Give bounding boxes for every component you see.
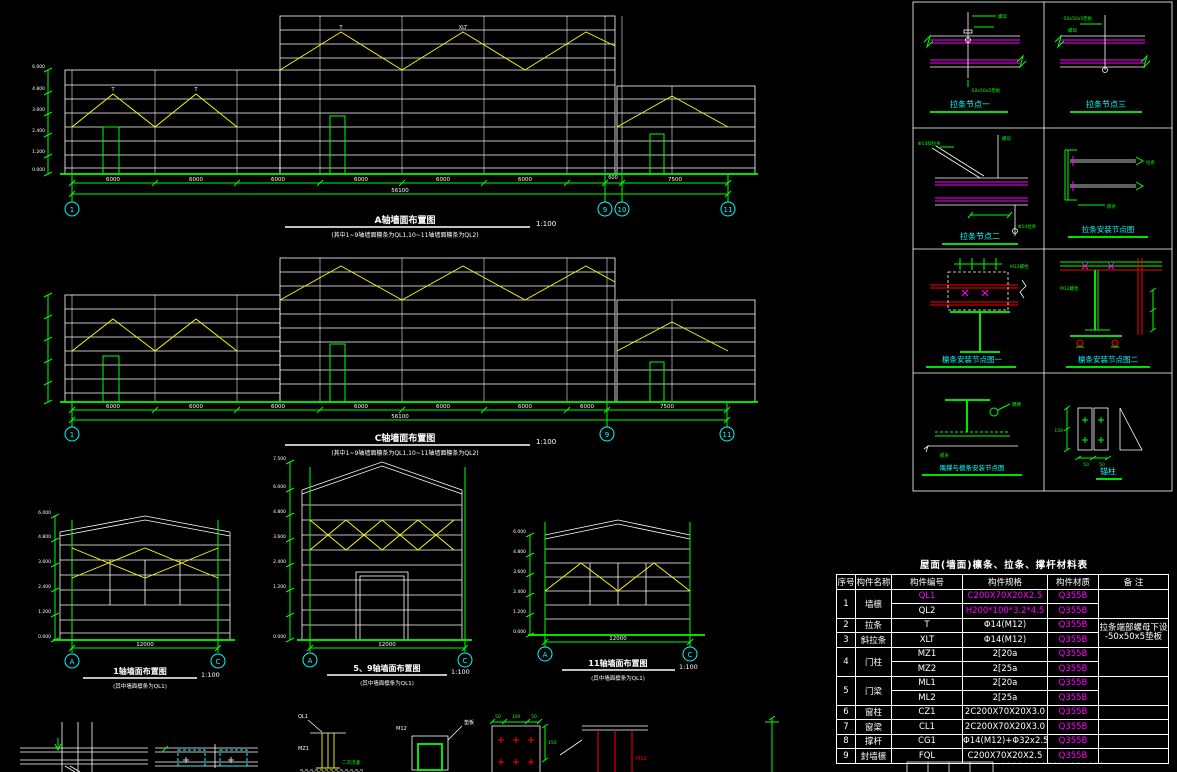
- level-label: 1.200: [38, 609, 51, 615]
- cell-id: CZ1: [892, 705, 963, 720]
- cell-material: Q355B: [1048, 705, 1099, 720]
- cell-no: 6: [837, 705, 856, 720]
- total-dim-label: 56100: [391, 188, 409, 194]
- level-label: 0.000: [273, 634, 286, 640]
- detail-tie-rod-node-2: Φ14斜拉条 螺母 Φ14拉条 拉条节点二: [918, 135, 1037, 244]
- purlin-label: 檩条: [940, 452, 949, 459]
- cell-remark: 拉条端部螺母下设 -50x50x5垫板: [1099, 618, 1169, 647]
- dim-label: 12000: [609, 636, 627, 642]
- door-column-label: MZ1: [298, 746, 309, 752]
- cell-material: Q355B: [1048, 618, 1099, 633]
- cad-canvas[interactable]: { "elev_a": { "title": "A轴墙面布置图", "scale…: [0, 0, 1177, 772]
- dim-label: 6000: [518, 177, 532, 183]
- level-label: 6.000: [273, 484, 286, 490]
- col-header-remark: 备 注: [1099, 575, 1169, 590]
- bottom-strip-details: QL1 MZ1 二次浇灌 M12 垫板 50 100 50 150 M12: [0, 700, 800, 772]
- detail-purlin-install-node-2: M12螺栓 檩条安装节点图二: [1060, 258, 1162, 367]
- dim-label: 6000: [271, 177, 285, 183]
- axis-bubble-label: C: [463, 657, 468, 665]
- axis-bubble-label: 11: [723, 431, 732, 439]
- detail-purlin-install-node-1: M12螺栓 檩条安装节点图一: [926, 258, 1029, 367]
- cell-remark: [1099, 676, 1169, 705]
- dim-label: 600: [608, 175, 618, 181]
- elevation-a-drawing: T T T XLT 6.000 4.800 3.600 2.400 1.200 …: [30, 6, 760, 240]
- level-dimension-stack: 6.000 4.800 3.600 2.400 1.200 0.000: [513, 529, 534, 637]
- cell-name: 斜拉条: [856, 633, 892, 648]
- grid-lines: [310, 467, 465, 652]
- level-dimension-stack: 6.000 4.800 3.600 2.400 1.200 0.000: [38, 510, 59, 642]
- level-label: 0.000: [513, 629, 526, 635]
- drawing-title-block: 5、9轴墙面布置图 1:100 (其中墙面檩条为QL1): [327, 663, 470, 687]
- total-dim-label: 56100: [391, 414, 409, 420]
- cell-id: ML1: [892, 676, 963, 691]
- cell-remark: [1099, 720, 1169, 735]
- detail-title: 隅撑与檩条安装节点图: [940, 463, 1005, 472]
- axis-bubbles: 1 9 10 11: [65, 174, 735, 216]
- cell-remark: [1099, 749, 1169, 764]
- cell-no: 7: [837, 720, 856, 735]
- axis-bubble-label: 1: [70, 206, 74, 214]
- level-label: 1.200: [32, 149, 45, 155]
- level-label: 2.400: [38, 584, 51, 590]
- column-beam-connection-detail: [20, 722, 148, 772]
- axis-bubble-label: C: [688, 651, 693, 659]
- drawing-title: A轴墙面布置图: [375, 214, 436, 226]
- level-label: 4.800: [273, 509, 286, 515]
- dim-label: 50: [531, 714, 537, 720]
- door-column-base-detail: QL1 MZ1 二次浇灌: [298, 714, 365, 772]
- details-panel: 螺母 -50x50x5垫板 拉条节点一 -50x50x5垫板 螺母 拉条节点三 …: [910, 0, 1177, 494]
- panel-borders: [913, 2, 1172, 491]
- cell-spec: 2[20a: [963, 676, 1048, 691]
- detail-title: 檩条安装节点图二: [1078, 354, 1138, 364]
- dim-label: 12000: [378, 642, 396, 648]
- axis-bubble-label: 9: [603, 206, 607, 214]
- axis-bubble-label: C: [216, 658, 221, 666]
- detail-knee-brace-node: 隅撑 檩条 隅撑与檩条安装节点图: [922, 400, 1022, 475]
- cell-no: 8: [837, 734, 856, 749]
- drawing-title: 11轴墙面布置图: [588, 658, 647, 668]
- grid-lines: [72, 258, 672, 402]
- cell-id: XLT: [892, 633, 963, 648]
- tie-label: 拉条: [1146, 159, 1155, 166]
- cell-name: 撑杆: [856, 734, 892, 749]
- level-label: 0.000: [38, 634, 51, 640]
- dim-label: 6000: [518, 404, 532, 410]
- ground-and-dimensions: 6000 6000 6000 6000 6000 6000 6000 7500 …: [60, 402, 758, 423]
- level-dimension-stack: 7.500 6.000 4.800 3.600 2.400 1.200 0.00…: [273, 456, 294, 642]
- drawing-scale: 1:100: [679, 663, 698, 671]
- anchor-bolt-label: M12: [636, 756, 647, 762]
- axis-bubble-label: 11: [724, 206, 733, 214]
- door-frames: [103, 116, 664, 174]
- cell-no: 5: [837, 676, 856, 705]
- dim-label: 6000: [189, 177, 203, 183]
- cell-spec: C200X70X20X2.5: [963, 589, 1048, 604]
- level-label: 3.600: [32, 107, 45, 113]
- cell-no: 2: [837, 618, 856, 633]
- purlin-label: QL1: [298, 714, 308, 720]
- dim-label: 150: [548, 740, 557, 746]
- material-table-title: 屋面(墙面)檩条、拉条、撑杆材料表: [836, 557, 1172, 571]
- detail-title: 拉条安装节点图: [1082, 224, 1135, 234]
- level-dimension-stack: 6.000 4.800 3.600 2.400 1.200 0.000: [32, 64, 52, 176]
- dim-label: 6000: [189, 404, 203, 410]
- dim-label: 6000: [354, 177, 368, 183]
- pad-label: 垫板: [464, 719, 474, 726]
- cell-no: 3: [837, 633, 856, 648]
- purlin-label: 檩条: [1107, 203, 1116, 210]
- cell-material: Q355B: [1048, 647, 1099, 662]
- wall-purlins: [65, 258, 755, 402]
- col-header-material: 构件材质: [1048, 575, 1099, 590]
- cell-id: CL1: [892, 720, 963, 735]
- cell-material: Q355B: [1048, 633, 1099, 648]
- cell-name: 窗梁: [856, 720, 892, 735]
- table-row: 7 窗梁 CL1 2C200X70X20X3.0 Q355B: [837, 720, 1169, 735]
- table-header-row: 序号 构件名称 构件编号 构件规格 构件材质 备 注: [837, 575, 1169, 590]
- pad-label: -50x50x5垫板: [970, 87, 1001, 94]
- cell-id: QL2: [892, 604, 963, 619]
- nut-label: 螺母: [1002, 135, 1011, 142]
- bolt-label: M12螺栓: [1060, 285, 1079, 292]
- elevation-59-drawing: 7.500 6.000 4.800 3.600 2.400 1.200 0.00…: [272, 452, 492, 697]
- drawing-scale: 1:100: [536, 220, 556, 228]
- diagonal-tie-rods: [72, 266, 728, 351]
- level-label: 4.800: [32, 86, 45, 92]
- detail-title: 檩条安装节点图一: [942, 354, 1002, 364]
- detail-title: 拉条节点二: [960, 231, 1000, 241]
- wall-purlins: [65, 16, 755, 174]
- ground-and-dimensions: 6000 6000 6000 6000 6000 6000 600 7500 5…: [60, 174, 758, 197]
- clamp-plate-detail: M12 垫板: [396, 719, 474, 770]
- diag-label: XLT: [459, 25, 469, 31]
- cell-id: CG1: [892, 734, 963, 749]
- detail-title: 锚柱: [1100, 466, 1116, 476]
- cell-no: 1: [837, 589, 856, 618]
- gable-frame: [302, 462, 462, 640]
- level-label: 1.200: [513, 609, 526, 615]
- cell-material: Q355B: [1048, 604, 1099, 619]
- detail-tie-rod-node-1: 螺母 -50x50x5垫板 拉条节点一: [924, 12, 1026, 112]
- dim-label: 6000: [106, 404, 120, 410]
- grout-label: 二次浇灌: [342, 759, 360, 766]
- axis-bubble-label: 10: [618, 206, 627, 214]
- table-row: 6 窗柱 CZ1 2C200X70X20X3.0 Q355B: [837, 705, 1169, 720]
- detail-tie-rod-node-3: -50x50x5垫板 螺母 拉条节点三: [1055, 15, 1150, 112]
- dim-label: 6000: [106, 177, 120, 183]
- dim-label: 6000: [436, 177, 450, 183]
- dim-label: 12000: [136, 642, 154, 648]
- col-header-name: 构件名称: [856, 575, 892, 590]
- member-labels: T T T XLT: [110, 25, 468, 93]
- level-label: 2.400: [273, 559, 286, 565]
- level-label: 6.000: [38, 510, 51, 516]
- nut-label: 螺母: [998, 13, 1007, 20]
- grid-lines: [545, 522, 690, 647]
- drawing-scale: 1:100: [451, 668, 470, 676]
- cell-no: 9: [837, 749, 856, 764]
- level-label: 2.400: [513, 589, 526, 595]
- cell-id: ML2: [892, 691, 963, 706]
- col-header-no: 序号: [837, 575, 856, 590]
- drawing-scale: 1:100: [201, 671, 220, 679]
- tie-label: Φ14拉条: [1018, 223, 1037, 230]
- axis-bubbles: A C: [65, 654, 225, 668]
- ground-and-dimensions: 12000: [53, 640, 235, 651]
- drawing-title-block: 11轴墙面布置图 1:100 (其中墙面檩条为QL1): [562, 658, 698, 682]
- ground-and-dimensions: 12000: [297, 640, 472, 651]
- detail-tie-rod-install-node: 拉条 檩条 拉条安装节点图: [1065, 150, 1155, 237]
- dim-label: 50: [495, 714, 501, 720]
- level-label: 3.600: [38, 559, 51, 565]
- cell-id: T: [892, 618, 963, 633]
- dim-label: 50: [1083, 462, 1089, 468]
- base-plate-detail: 50 100 50 150: [490, 714, 557, 772]
- level-label: 2.400: [32, 128, 45, 134]
- detail-anchor-column: 150 50 50 锚柱: [1054, 406, 1142, 479]
- pad-label: -50x50x5垫板: [1062, 15, 1093, 22]
- level-label: 3.600: [513, 569, 526, 575]
- material-table: 序号 构件名称 构件编号 构件规格 构件材质 备 注 1 墙檩 QL1 C200…: [836, 574, 1169, 764]
- drawing-title: C轴墙面布置图: [375, 432, 436, 444]
- cell-remark: [1099, 705, 1169, 720]
- cell-material: Q355B: [1048, 691, 1099, 706]
- dim-label: 7500: [668, 177, 682, 183]
- dim-label: 6000: [271, 404, 285, 410]
- gable-frame: [545, 520, 690, 635]
- bolt-label: M12: [396, 726, 407, 732]
- level-label: 4.800: [513, 549, 526, 555]
- dim-label: 6000: [580, 404, 594, 410]
- elevation-c-drawing: 6000 6000 6000 6000 6000 6000 6000 7500 …: [30, 244, 760, 458]
- grid-lines: [72, 16, 672, 174]
- cell-spec: 2C200X70X20X3.0: [963, 705, 1048, 720]
- dim-label: 150: [1054, 428, 1063, 434]
- drawing-title-block: A轴墙面布置图 1:100 (其中1~9轴墙面檩条为QL1,10~11轴墙面檩条…: [285, 214, 556, 239]
- knee-brace-label: 隅撑: [1012, 401, 1021, 408]
- drawing-note: (其中墙面檩条为QL1): [113, 682, 167, 690]
- cell-id: MZ1: [892, 647, 963, 662]
- axis-bubble-label: 9: [605, 431, 609, 439]
- beam-splice-detail: [155, 744, 258, 768]
- drawing-note: (其中墙面檩条为QL1): [360, 679, 414, 687]
- level-label: 4.800: [38, 534, 51, 540]
- drawing-note: (其中1~9轴墙面檩条为QL1,10~11轴墙面檩条为QL2): [331, 231, 478, 239]
- cell-id: MZ2: [892, 662, 963, 677]
- nut-label: 螺母: [1068, 27, 1077, 34]
- level-dimension-stack: [44, 293, 52, 404]
- sheet-footer-note: · · · · · · · · · · · · · · · · · ·: [1002, 760, 1104, 767]
- cell-spec: 2[25a: [963, 691, 1048, 706]
- cell-spec: Φ14(M12)+Φ32x2.5: [963, 734, 1048, 749]
- level-label: 6.000: [32, 64, 45, 70]
- col-header-id: 构件编号: [892, 575, 963, 590]
- cell-name: 门柱: [856, 647, 892, 676]
- cell-remark: [1099, 734, 1169, 749]
- cell-name: 拉条: [856, 618, 892, 633]
- cell-id: QL1: [892, 589, 963, 604]
- cell-no: 4: [837, 647, 856, 676]
- level-label: 1.200: [273, 584, 286, 590]
- axis-bubble-label: A: [70, 658, 75, 666]
- cell-name: 墙檩: [856, 589, 892, 618]
- cell-remark: [1099, 589, 1169, 618]
- level-label: 7.500: [273, 456, 286, 462]
- cell-material: Q355B: [1048, 676, 1099, 691]
- anchor-bolt-detail: M12: [560, 716, 779, 772]
- drawing-title: 1轴墙面布置图: [113, 666, 167, 676]
- diag-tie-label: Φ14斜拉条: [918, 140, 941, 147]
- drawing-note: (其中墙面檩条为QL1): [591, 674, 645, 682]
- level-label: 3.600: [273, 534, 286, 540]
- cell-name: 窗柱: [856, 705, 892, 720]
- elevation-1-drawing: 6.000 4.800 3.600 2.400 1.200 0.000 1200…: [25, 500, 240, 700]
- drawing-title-block: 1轴墙面布置图 1:100 (其中墙面檩条为QL1): [83, 666, 220, 690]
- cell-spec: 2C200X70X20X3.0: [963, 720, 1048, 735]
- tie-label: T: [193, 87, 198, 93]
- cell-name: 门梁: [856, 676, 892, 705]
- ground-and-dimensions: 12000: [528, 635, 705, 645]
- cell-remark: [1099, 647, 1169, 676]
- elevation-11-drawing: 6.000 4.800 3.600 2.400 1.200 0.000 1200…: [500, 502, 715, 697]
- cell-name: 封墙檩: [856, 749, 892, 764]
- cell-material: Q355B: [1048, 589, 1099, 604]
- table-row: 2 拉条 T Φ14(M12) Q355B 拉条端部螺母下设 -50x50x5垫…: [837, 618, 1169, 633]
- drawing-scale: 1:100: [536, 438, 556, 446]
- col-header-spec: 构件规格: [963, 575, 1048, 590]
- table-row: 5 门梁 ML1 2[20a Q355B: [837, 676, 1169, 691]
- cell-spec: Φ14(M12): [963, 633, 1048, 648]
- dim-label: 6000: [436, 404, 450, 410]
- axis-bubble-label: A: [543, 651, 548, 659]
- level-label: 6.000: [513, 529, 526, 535]
- bolt-label: M12螺栓: [1010, 263, 1029, 270]
- cell-material: Q355B: [1048, 662, 1099, 677]
- detail-title: 拉条节点一: [950, 99, 990, 109]
- table-row: 8 撑杆 CG1 Φ14(M12)+Φ32x2.5 Q355B: [837, 734, 1169, 749]
- dim-label: 7500: [660, 404, 674, 410]
- tie-label: T: [110, 87, 115, 93]
- dim-label: 6000: [354, 404, 368, 410]
- cell-spec: H200*100*3.2*4.5: [963, 604, 1048, 619]
- cell-spec: 2[20a: [963, 647, 1048, 662]
- axis-bubble-label: 1: [70, 431, 74, 439]
- drawing-title: 5、9轴墙面布置图: [353, 663, 420, 673]
- axis-bubble-label: A: [308, 657, 313, 665]
- level-label: 0.000: [32, 167, 45, 173]
- dim-label: 100: [512, 714, 521, 720]
- cell-spec: Φ14(M12): [963, 618, 1048, 633]
- cell-material: Q355B: [1048, 734, 1099, 749]
- cell-material: Q355B: [1048, 720, 1099, 735]
- detail-title: 拉条节点三: [1086, 99, 1126, 109]
- material-table-block: 屋面(墙面)檩条、拉条、撑杆材料表 序号 构件名称 构件编号 构件规格 构件材质…: [836, 557, 1172, 764]
- cell-spec: 2[25a: [963, 662, 1048, 677]
- table-row: 4 门柱 MZ1 2[20a Q355B: [837, 647, 1169, 662]
- table-row: 1 墙檩 QL1 C200X70X20X2.5 Q355B: [837, 589, 1169, 604]
